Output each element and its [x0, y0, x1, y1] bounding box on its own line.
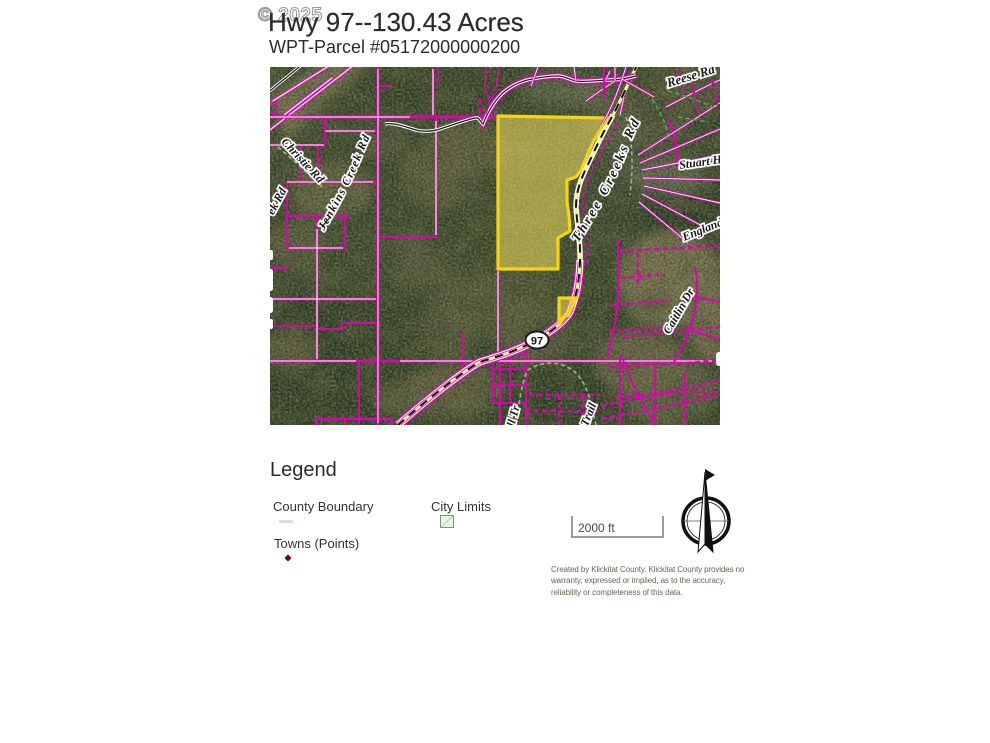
- svg-text:97: 97: [531, 336, 543, 348]
